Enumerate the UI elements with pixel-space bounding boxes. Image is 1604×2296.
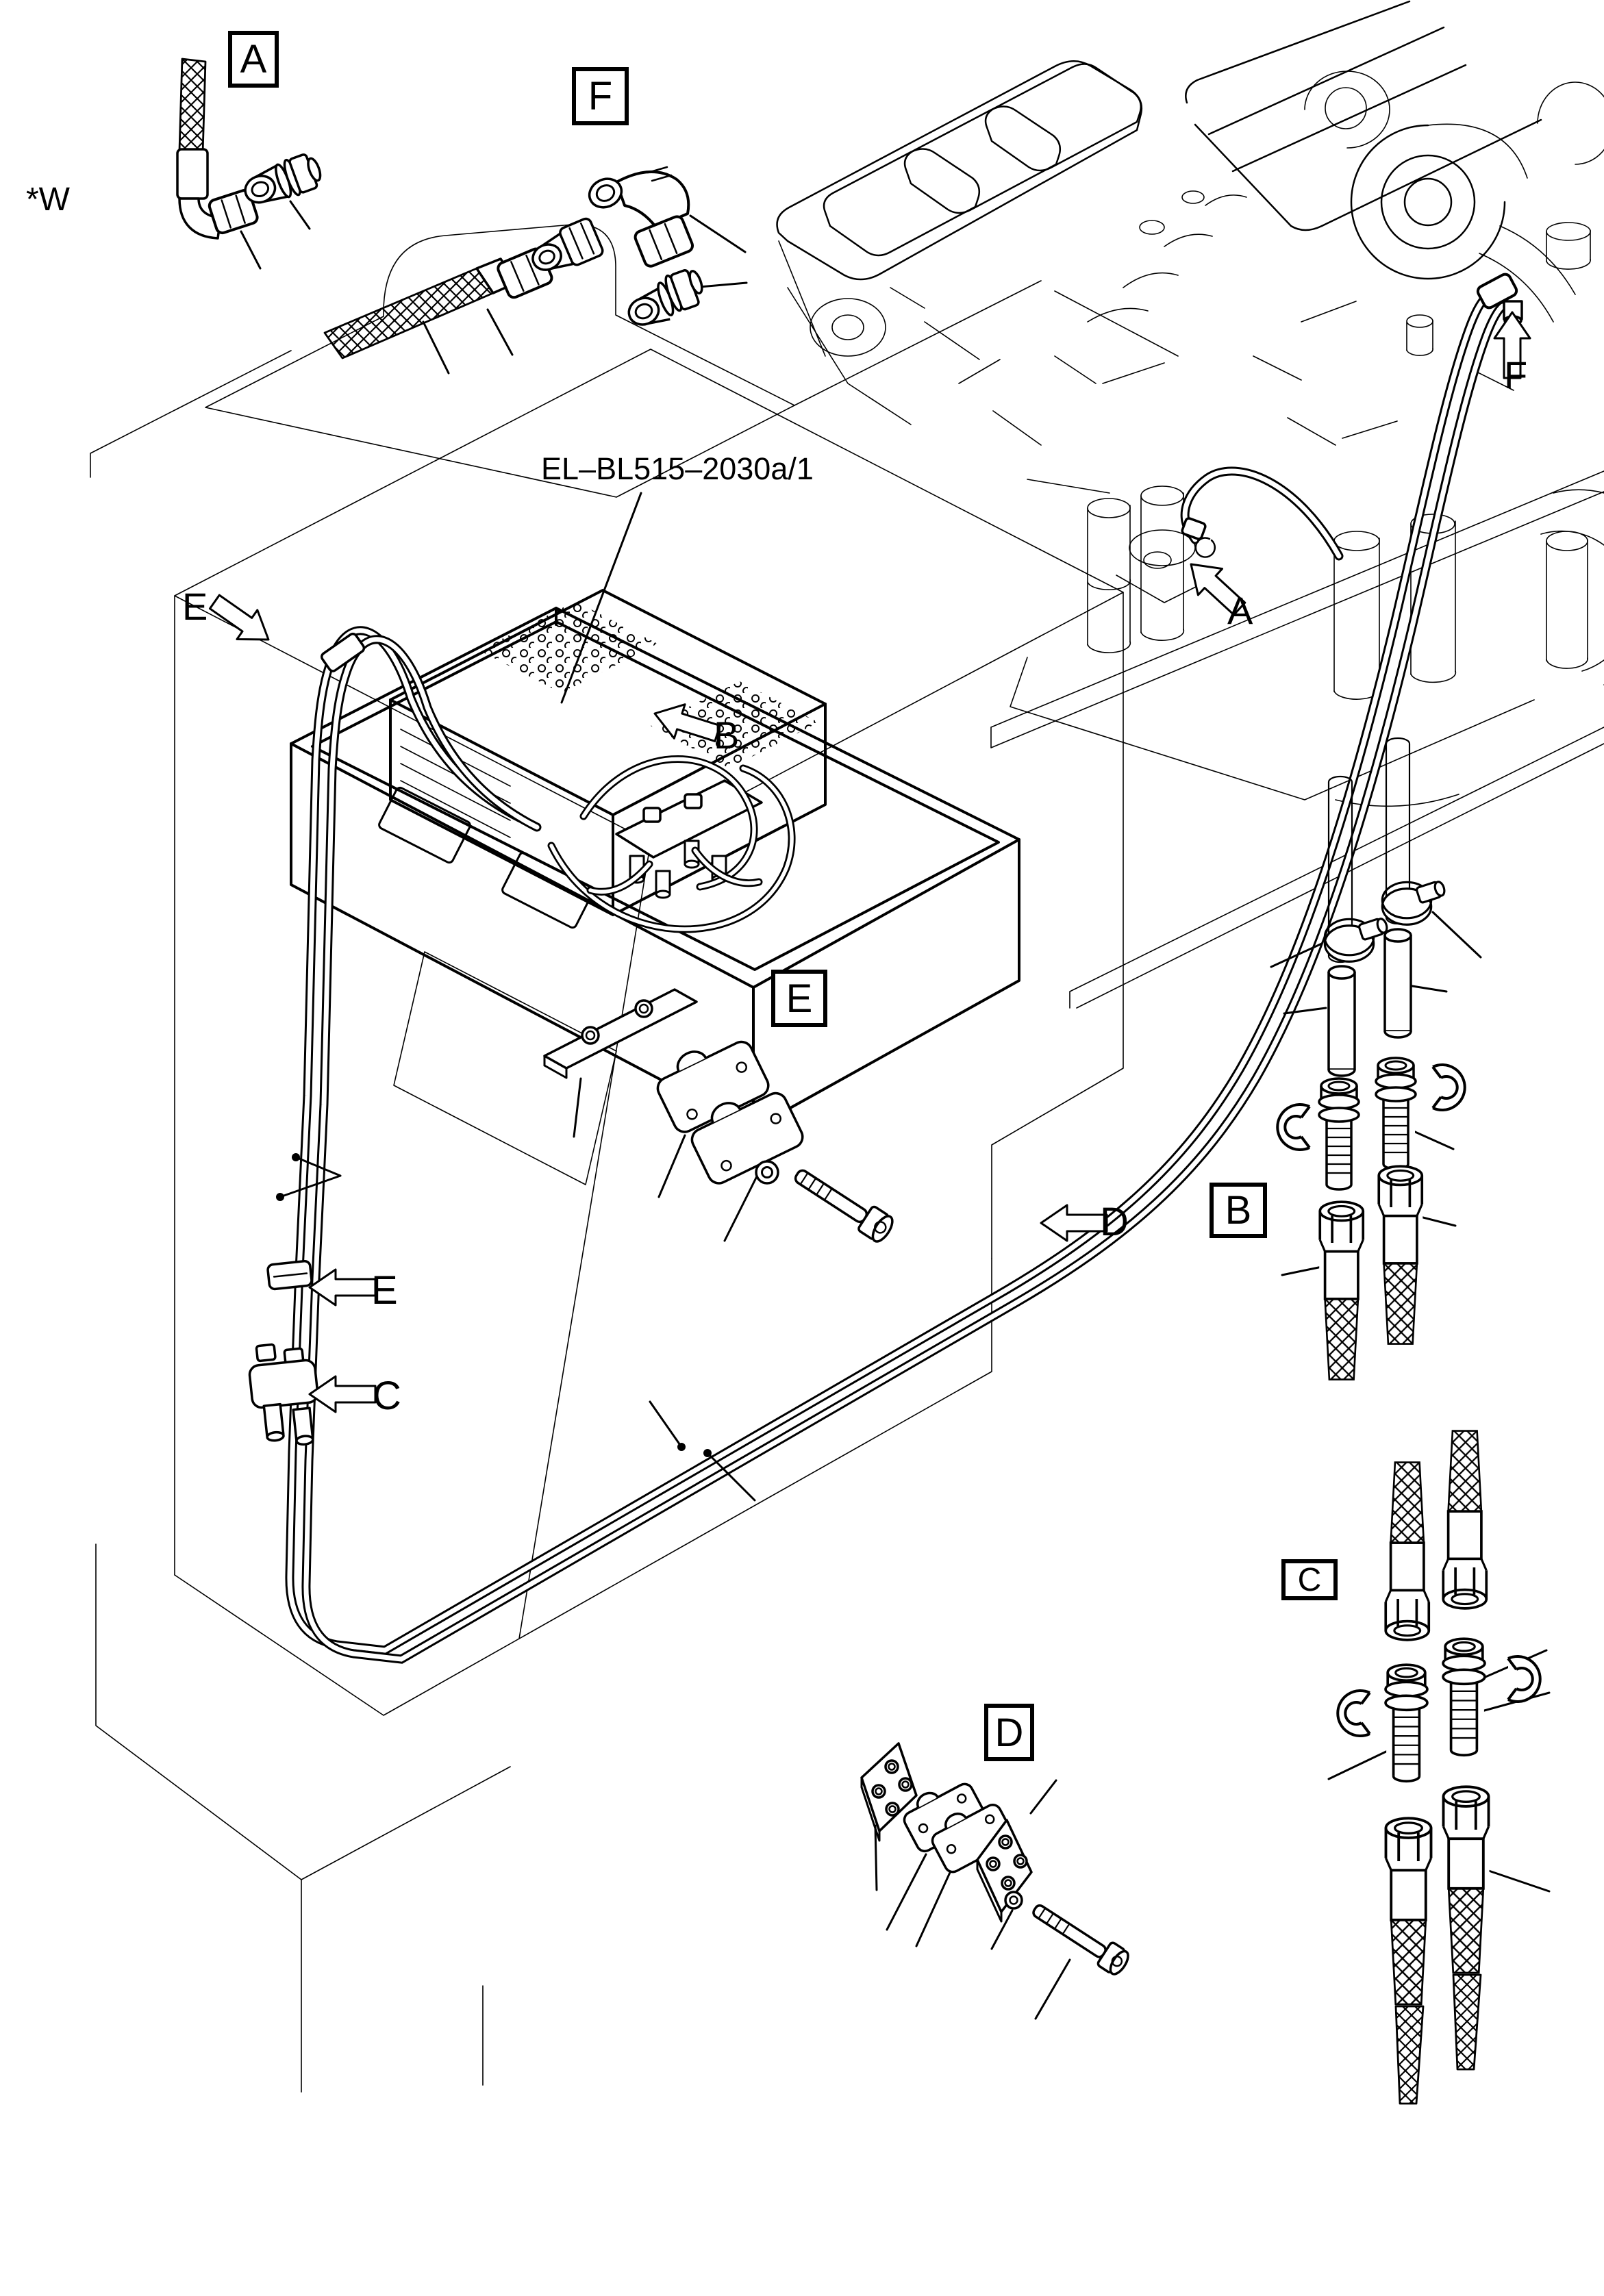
detail-box-d-letter: D: [995, 1710, 1024, 1756]
arrow-label-a-engine: A: [1227, 592, 1253, 630]
detail-box-a-letter: A: [240, 36, 267, 82]
arrow-label-b-unit: B: [714, 716, 739, 755]
detail-box-c-letter: C: [1298, 1561, 1322, 1599]
detail-box-b: B: [1210, 1183, 1267, 1238]
detail-b-parts: [1277, 738, 1464, 1380]
arrow-icon-d-hoses: [1041, 1205, 1107, 1241]
detail-e-parts: [544, 989, 896, 1245]
detail-box-f: F: [572, 67, 629, 125]
arrow-label-f-engine: F: [1504, 356, 1527, 394]
parts-diagram-page: *W EL–BL515–2030a/1 A F E B C D E B A F …: [0, 0, 1604, 2296]
diagram-line-art: [0, 0, 1604, 2296]
arrow-label-c-coupling: C: [373, 1376, 401, 1416]
detail-box-d: D: [984, 1704, 1034, 1761]
detail-box-c: C: [1281, 1559, 1338, 1600]
tank-and-platform-illustration: [90, 225, 1178, 2092]
arrow-label-e-clamp: E: [371, 1271, 398, 1311]
arrow-label-e-tank: E: [182, 588, 208, 626]
detail-d-parts: [862, 1743, 1132, 1978]
detail-box-a: A: [228, 31, 279, 88]
arrow-label-d-hoses: D: [1100, 1202, 1129, 1242]
detail-box-f-letter: F: [588, 73, 612, 119]
assembly-reference-label: EL–BL515–2030a/1: [541, 453, 814, 484]
detail-box-b-letter: B: [1225, 1187, 1252, 1233]
detail-box-e-letter: E: [786, 976, 813, 1022]
detail-f-parts: [325, 167, 710, 358]
hose-run: [247, 273, 1522, 1659]
arrow-icon-c-coupling: [310, 1376, 375, 1412]
detail-box-e: E: [771, 970, 827, 1027]
detail-c-parts: [1338, 1431, 1540, 2104]
footnote-w: *W: [26, 184, 70, 216]
